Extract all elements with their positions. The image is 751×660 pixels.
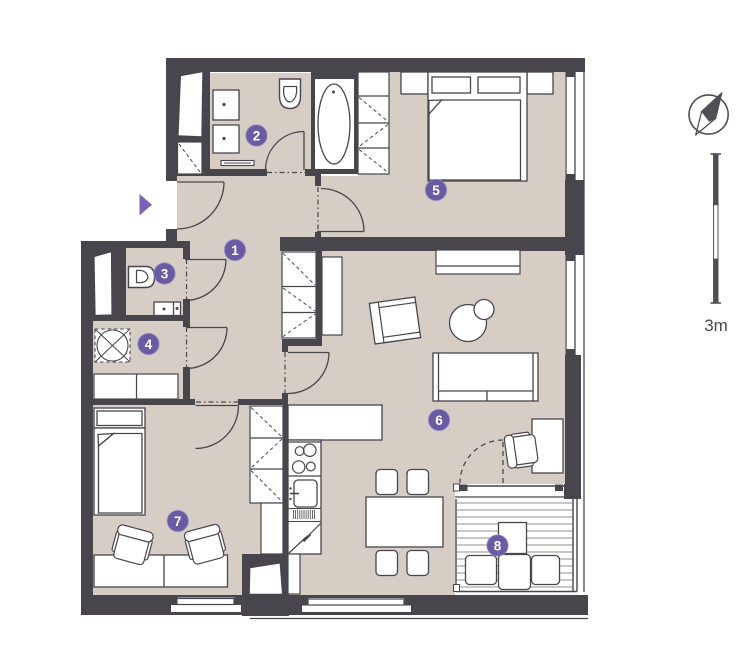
svg-text:4: 4 xyxy=(145,337,153,352)
svg-text:1: 1 xyxy=(231,243,239,258)
svg-text:2: 2 xyxy=(253,128,261,143)
svg-text:3m: 3m xyxy=(704,316,728,335)
svg-text:3: 3 xyxy=(161,266,169,281)
svg-text:7: 7 xyxy=(174,514,182,529)
svg-text:5: 5 xyxy=(432,183,440,198)
svg-text:8: 8 xyxy=(494,538,502,553)
svg-text:6: 6 xyxy=(435,413,443,428)
